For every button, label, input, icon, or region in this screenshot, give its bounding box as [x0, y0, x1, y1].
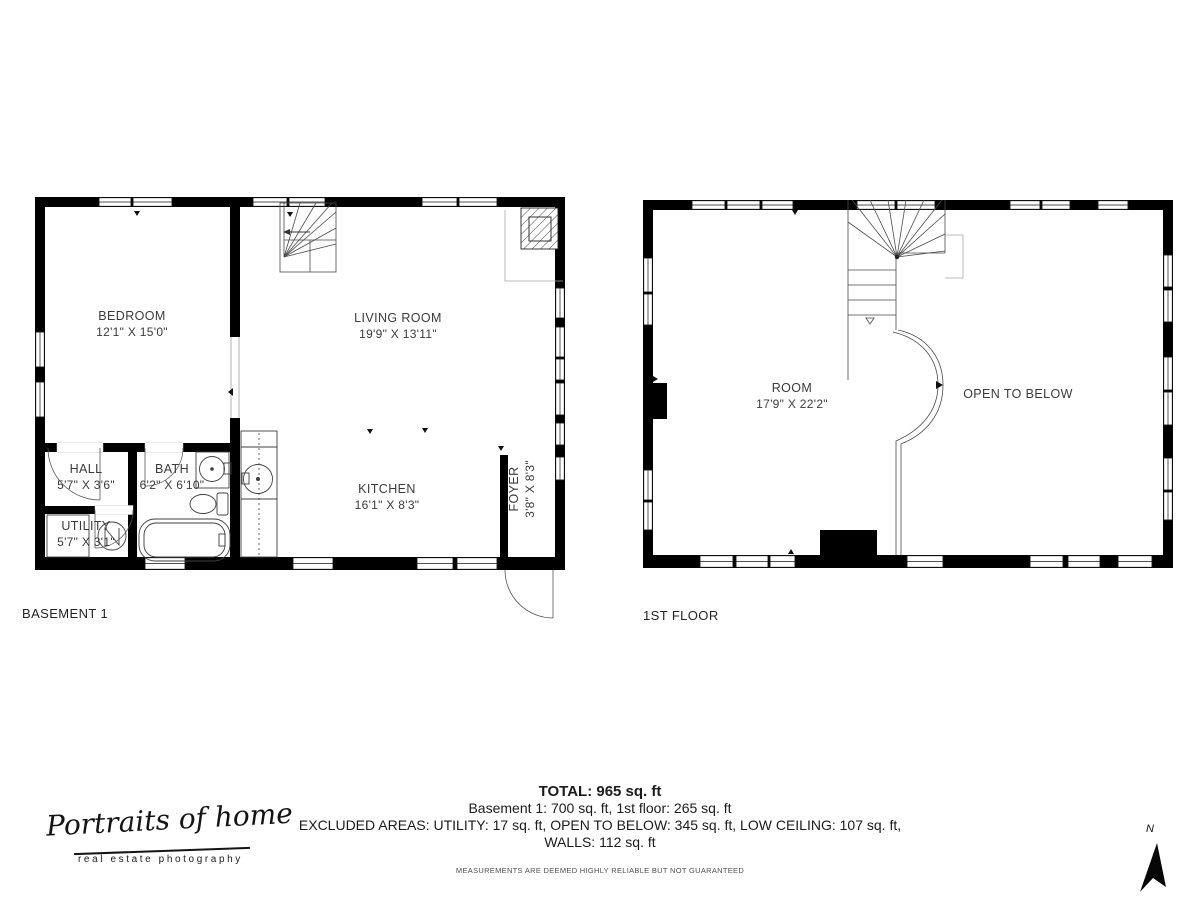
bedroom-dims: 12'1" X 15'0"	[96, 324, 168, 340]
north-arrow-icon	[1130, 830, 1180, 900]
room-name: ROOM	[756, 380, 828, 396]
utility-dims: 5'7" X 3'1"	[57, 534, 115, 550]
utility-name: UTILITY	[57, 518, 115, 534]
logo-subtitle: real estate photography	[78, 854, 243, 865]
hall-dims: 5'7" X 3'6"	[57, 477, 115, 493]
kitchen-dims: 16'1" X 8'3"	[355, 497, 420, 513]
logo-script-text: Portraits of home	[45, 798, 261, 842]
foyer-dims: 3'8" X 8'3"	[522, 460, 538, 518]
first-floor-stairs-icon	[848, 200, 963, 380]
logo: Portraits of home real estate photograph…	[46, 804, 261, 837]
kitchen-counter-icon	[241, 431, 277, 557]
bedroom-name: BEDROOM	[96, 308, 168, 324]
room-label-foyer: FOYER 3'8" X 8'3"	[506, 460, 538, 518]
curved-wall	[893, 330, 943, 555]
basement-measure-ticks	[134, 211, 504, 451]
total-area: TOTAL: 965 sq. ft	[0, 783, 1200, 800]
room-label-open-to-below: OPEN TO BELOW	[963, 386, 1073, 402]
room-dims: 17'9" X 22'2"	[756, 396, 828, 412]
foyer-name: FOYER	[506, 460, 522, 518]
bath-dims: 6'2" X 6'10"	[140, 477, 205, 493]
living-room-dims: 19'9" X 13'11"	[354, 326, 442, 342]
disclaimer-text: MEASUREMENTS ARE DEEMED HIGHLY RELIABLE …	[0, 866, 1200, 875]
first-floor-plan	[643, 200, 1173, 568]
living-room-name: LIVING ROOM	[354, 310, 442, 326]
fireplace-hatch-icon	[505, 208, 563, 281]
open-to-below-name: OPEN TO BELOW	[963, 386, 1073, 402]
floorplan-page: BEDROOM 12'1" X 15'0" LIVING ROOM 19'9" …	[0, 0, 1200, 900]
first-floor-title: 1ST FLOOR	[643, 608, 719, 623]
room-label-bedroom: BEDROOM 12'1" X 15'0"	[96, 308, 168, 340]
bath-name: BATH	[140, 461, 205, 477]
basement-title: BASEMENT 1	[22, 606, 108, 621]
hall-name: HALL	[57, 461, 115, 477]
room-label-kitchen: KITCHEN 16'1" X 8'3"	[355, 481, 420, 513]
room-label-utility: UTILITY 5'7" X 3'1"	[57, 518, 115, 550]
room-label-living-room: LIVING ROOM 19'9" X 13'11"	[354, 310, 442, 342]
room-label-hall: HALL 5'7" X 3'6"	[57, 461, 115, 493]
room-label-room: ROOM 17'9" X 22'2"	[756, 380, 828, 412]
first-floor-walls	[643, 200, 1173, 568]
floorplan-drawing	[0, 0, 1200, 900]
room-label-bath: BATH 6'2" X 6'10"	[140, 461, 205, 493]
basement-plan	[35, 197, 565, 618]
kitchen-name: KITCHEN	[355, 481, 420, 497]
basement-door-arcs	[48, 448, 553, 618]
